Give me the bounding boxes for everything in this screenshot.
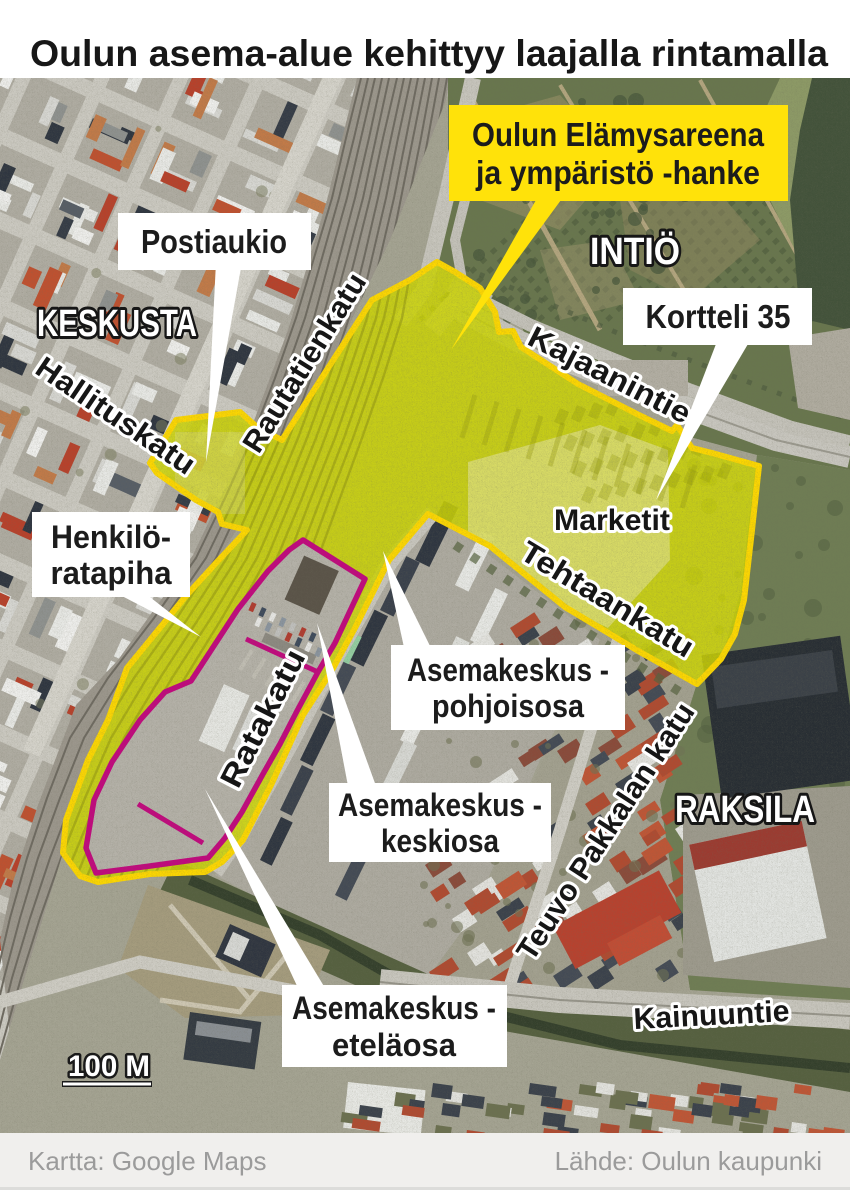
svg-text:Asemakeskus -: Asemakeskus - xyxy=(338,787,542,823)
svg-text:ratapiha: ratapiha xyxy=(51,555,172,591)
svg-text:ja ympäristö -hanke: ja ympäristö -hanke xyxy=(475,154,760,191)
svg-text:KESKUSTA: KESKUSTA xyxy=(37,303,197,345)
svg-text:100 M: 100 M xyxy=(68,1050,150,1083)
svg-text:INTIÖ: INTIÖ xyxy=(590,230,680,273)
svg-text:Kartta: Google Maps: Kartta: Google Maps xyxy=(28,1146,266,1176)
svg-text:Asemakeskus -: Asemakeskus - xyxy=(407,652,609,688)
svg-text:eteläosa: eteläosa xyxy=(332,1027,456,1063)
svg-text:Oulun Elämysareena: Oulun Elämysareena xyxy=(472,116,765,153)
svg-text:pohjoisosa: pohjoisosa xyxy=(432,688,584,724)
svg-text:Marketit: Marketit xyxy=(554,504,670,537)
svg-text:Oulun asema-alue kehittyy laaj: Oulun asema-alue kehittyy laajalla rinta… xyxy=(30,33,828,74)
svg-text:keskiosa: keskiosa xyxy=(381,823,499,859)
svg-text:Kortteli 35: Kortteli 35 xyxy=(646,298,791,335)
svg-text:Postiaukio: Postiaukio xyxy=(141,223,287,260)
svg-text:RAKSILA: RAKSILA xyxy=(675,789,815,831)
svg-text:Lähde: Oulun kaupunki: Lähde: Oulun kaupunki xyxy=(555,1146,822,1176)
svg-text:Henkilö-: Henkilö- xyxy=(51,519,171,555)
svg-text:Asemakeskus -: Asemakeskus - xyxy=(292,990,496,1026)
